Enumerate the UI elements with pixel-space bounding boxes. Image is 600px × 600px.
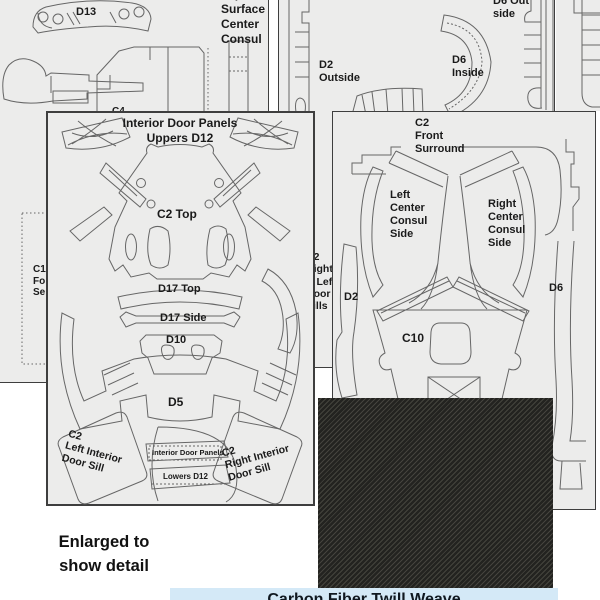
caption-band: Carbon Fiber Twill Weave	[170, 588, 558, 600]
pattern-diagram-page: D13 TopSurfaceCenterConsul C1FoSe C4 D2O…	[0, 0, 600, 600]
caption-text: Carbon Fiber Twill Weave	[267, 591, 460, 600]
enlarged-note: Enlarged to show detail	[46, 530, 162, 578]
layer-foreground: Carbon Fiber Twill Weave Enlarged to sho…	[0, 0, 600, 600]
enlarged-note-line1: Enlarged to	[46, 530, 162, 554]
enlarged-note-line2: show detail	[46, 554, 162, 578]
carbon-fiber-swatch	[318, 398, 553, 588]
